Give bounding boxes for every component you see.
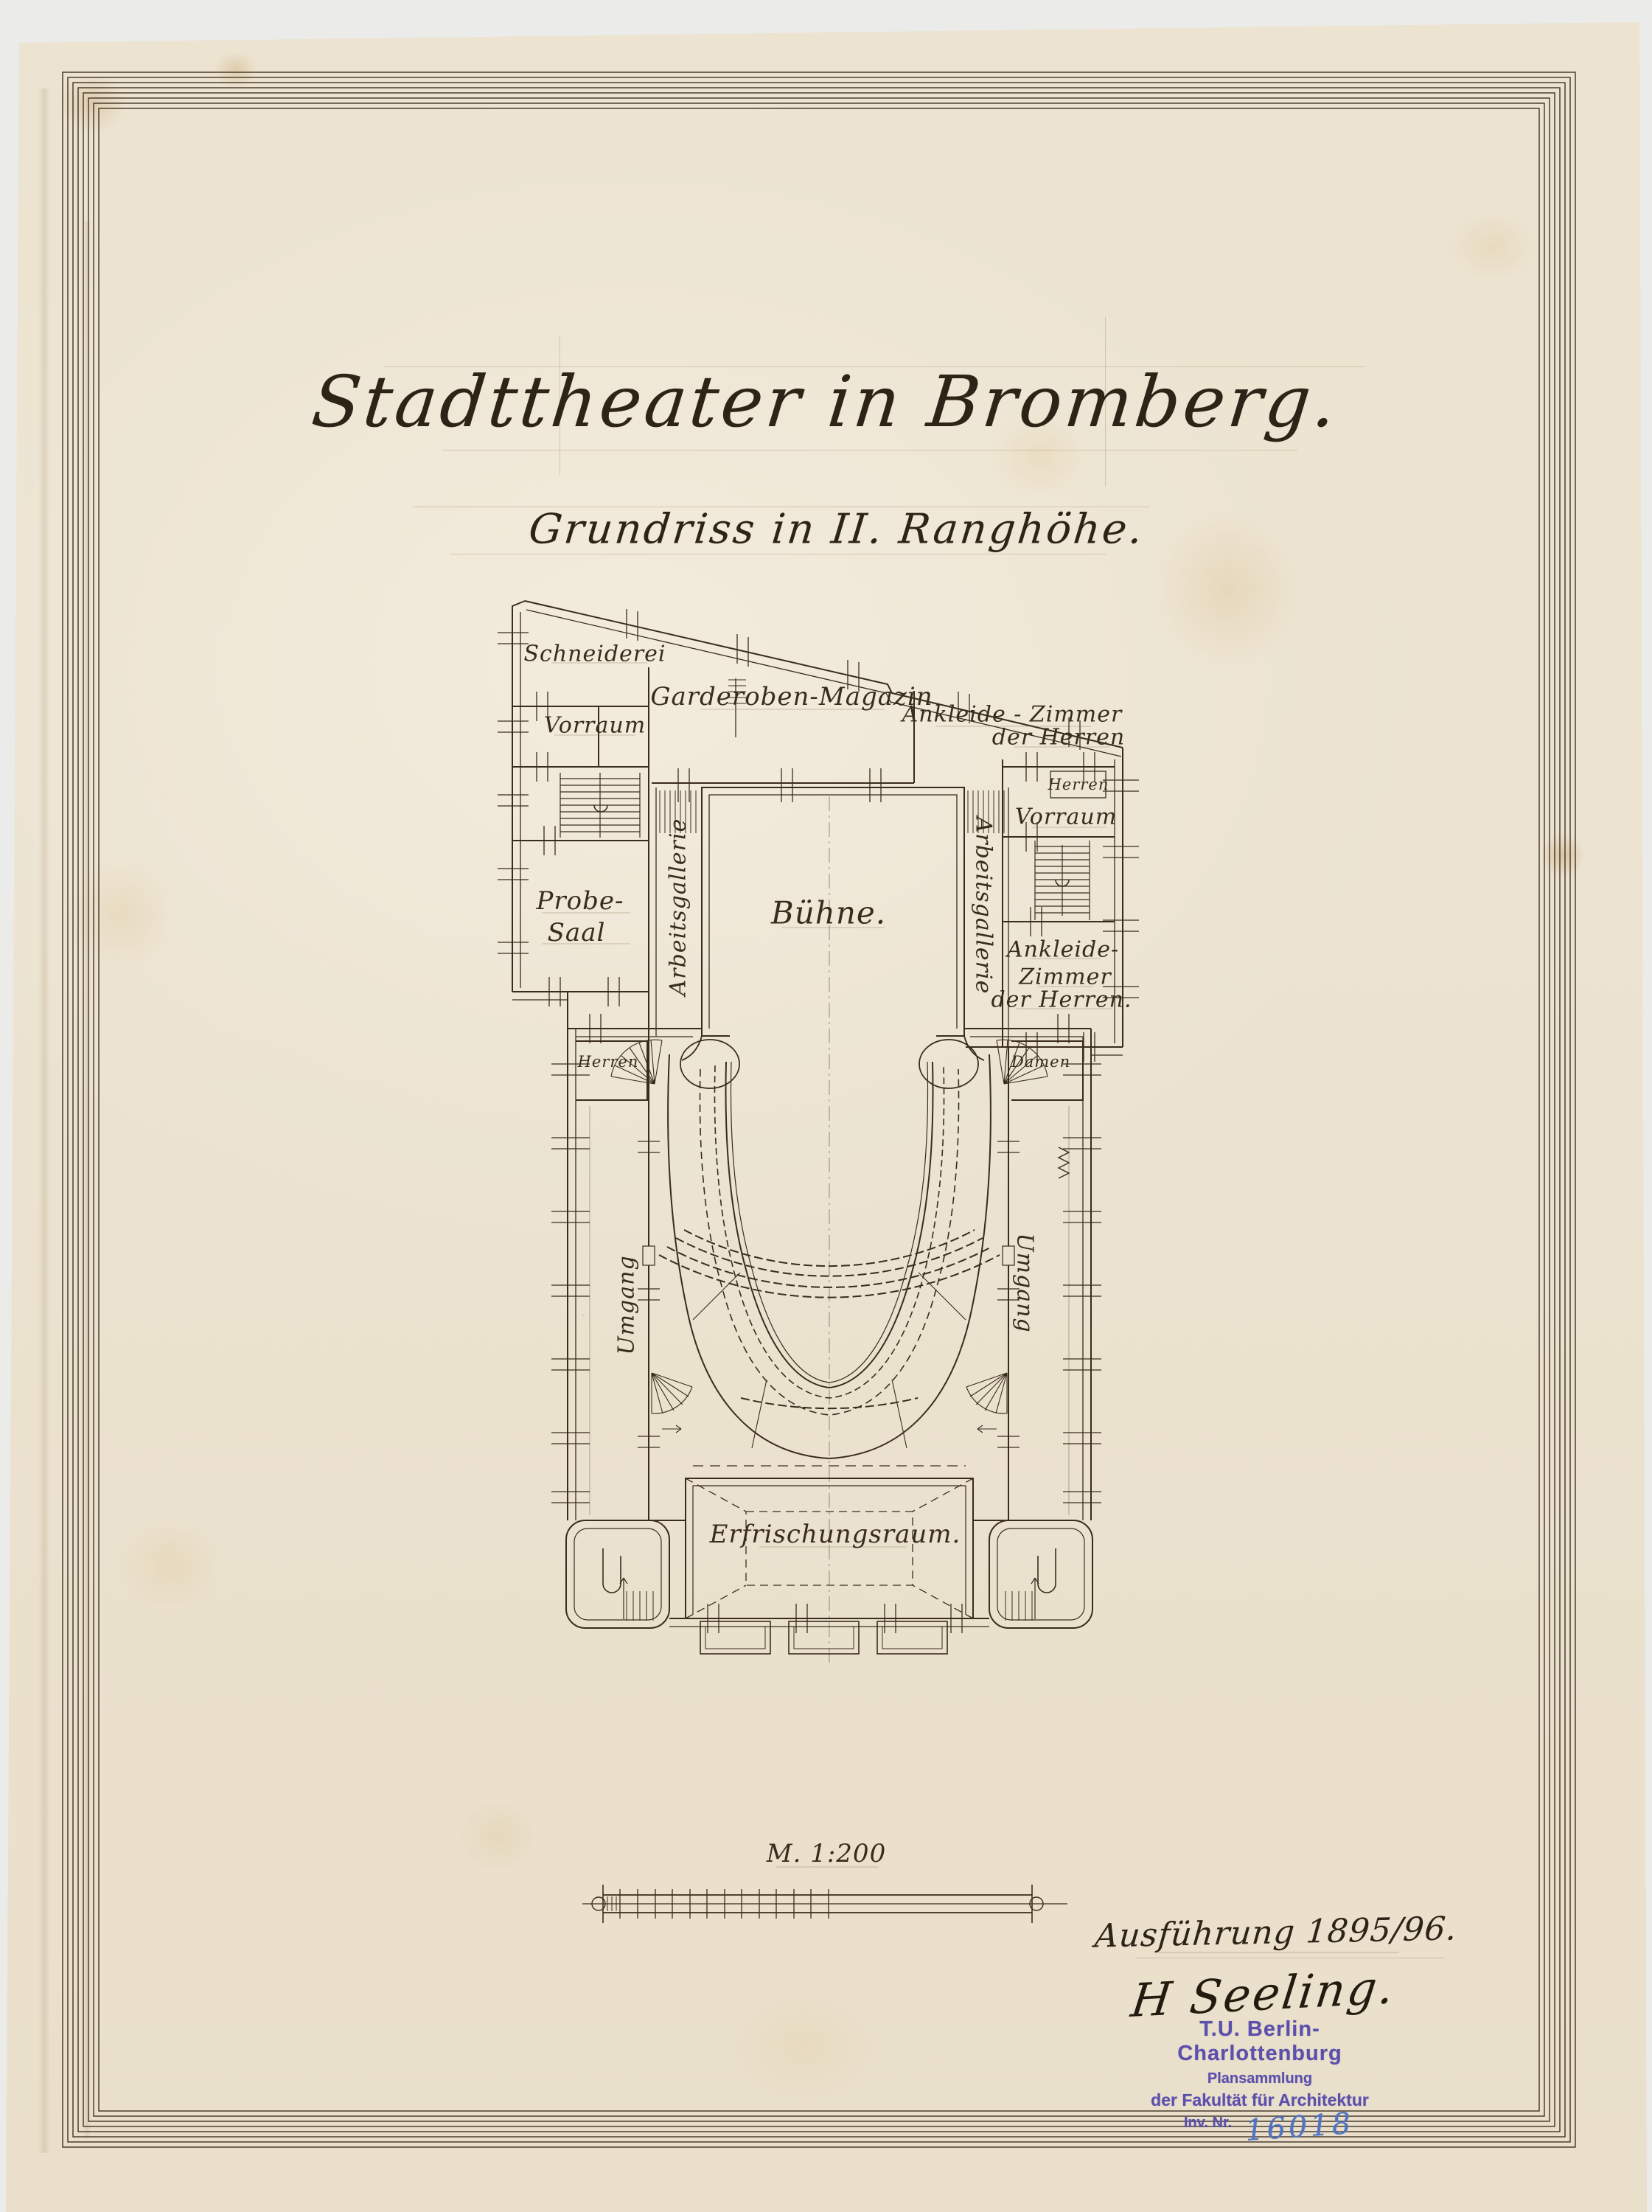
room-label-umgang-right: Umgang — [1012, 1233, 1038, 1332]
stamp-line-2: Plansammlung — [1138, 2070, 1381, 2087]
drawing-title: Stadttheater in Bromberg. — [308, 361, 1343, 443]
room-label-ankleide-top-1: Ankleide - Zimmer — [902, 702, 1123, 728]
room-label-ankleide-top-2: der Herren — [992, 725, 1126, 751]
room-label-ankleide-bot-1: Ankleide- — [1007, 937, 1119, 963]
wall-ticks — [498, 609, 1139, 1633]
execution-note: Ausführung 1895/96. — [1093, 1910, 1458, 1955]
room-label-erfrischungsraum: Erfrischungsraum. — [710, 1520, 961, 1549]
room-label-vorraum-right: Vorraum — [1015, 804, 1117, 830]
room-label-damen-foyer: Damen — [1011, 1053, 1070, 1071]
room-label-arbeitsgallerie-left: Arbeitsgallerie — [666, 818, 691, 996]
room-label-buehne: Bühne. — [771, 895, 886, 931]
room-label-schneiderei: Schneiderei — [524, 641, 666, 667]
room-label-herren-foyer: Herren — [578, 1053, 639, 1071]
room-label-herren-closet: Herren — [1048, 776, 1109, 793]
room-label-garderoben: Garderoben-Magazin — [650, 682, 933, 712]
right-wing-stair — [1035, 841, 1090, 920]
left-wing-stair — [560, 773, 640, 838]
archive-stamp: T.U. Berlin-Charlottenburg Plansammlung … — [1138, 2017, 1381, 2144]
room-label-umgang-left: Umgang — [614, 1255, 640, 1354]
room-label-arbeitsgallerie-right: Arbeitsgallerie — [971, 817, 997, 995]
stamp-line-1: T.U. Berlin-Charlottenburg — [1138, 2017, 1381, 2066]
room-label-vorraum-left: Vorraum — [544, 713, 646, 739]
room-label-probe-2: Saal — [548, 918, 606, 947]
floor-plan-drawing — [0, 0, 1652, 2212]
room-label-ankleide-bot-2: Zimmer — [1019, 964, 1111, 990]
drawing-subtitle: Grundriss in II. Ranghöhe. — [526, 506, 1146, 554]
scale-bar — [582, 1885, 1067, 1923]
scanned-drawing-sheet: Stadttheater in Bromberg. Grundriss in I… — [0, 0, 1652, 2212]
wavy-symbol — [1059, 1147, 1069, 1178]
inventory-number: 16018 — [1244, 2107, 1355, 2148]
room-label-probe-1: Probe- — [537, 886, 624, 916]
scale-label: M. 1:200 — [767, 1839, 886, 1868]
stamp-inv-nr-label: Inv. Nr. — [1184, 2115, 1232, 2132]
room-label-ankleide-bot-3: der Herren. — [991, 987, 1132, 1013]
